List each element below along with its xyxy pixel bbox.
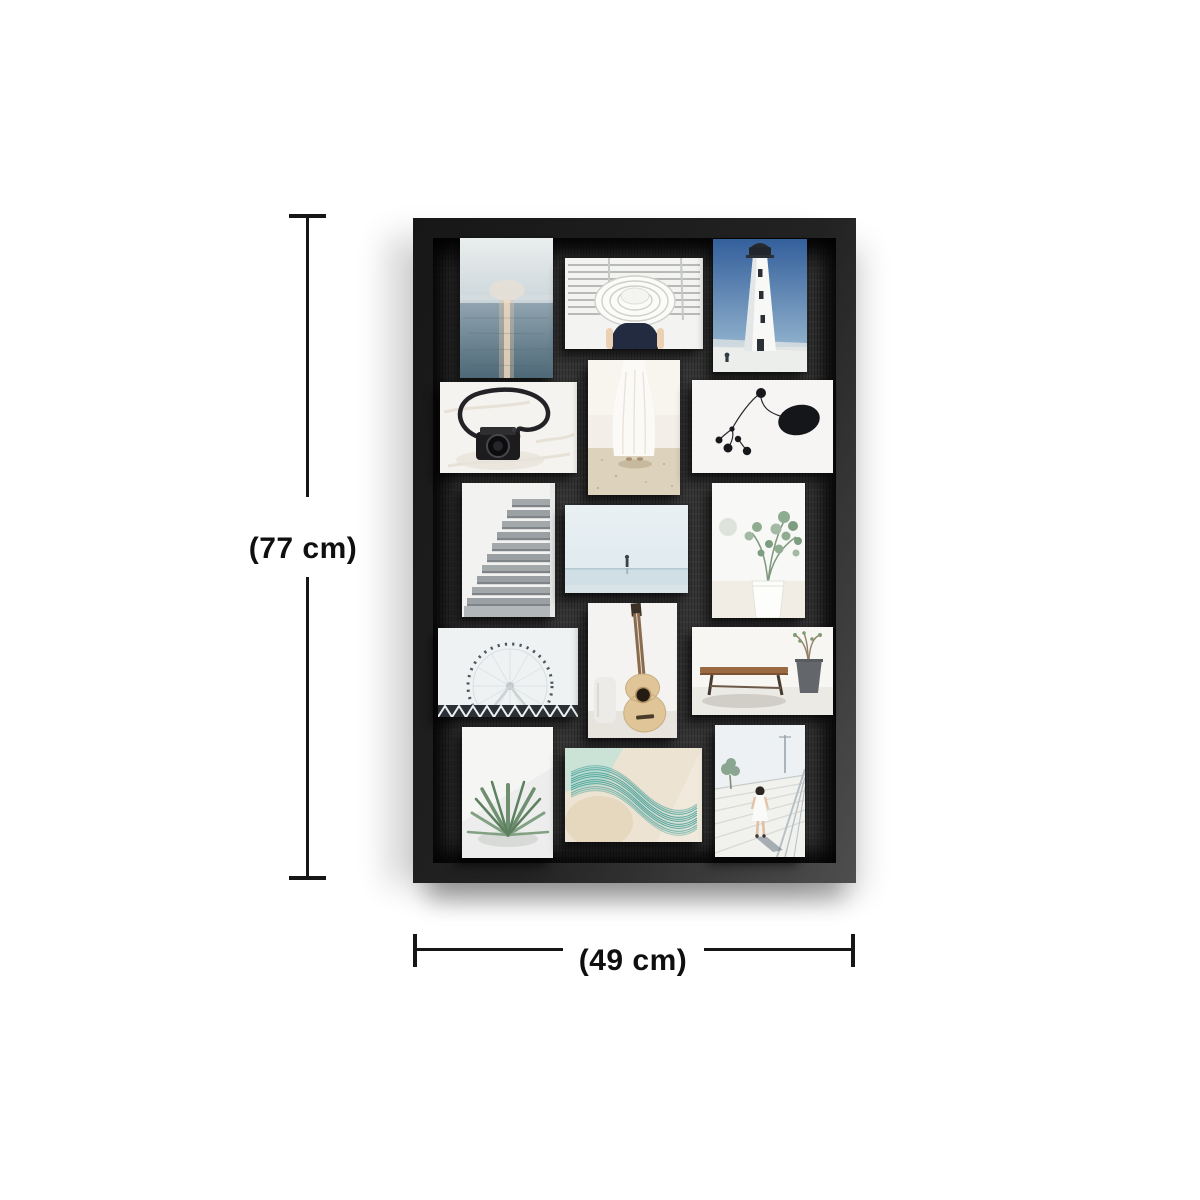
photo-illustration	[712, 483, 805, 618]
photo-illustration	[715, 725, 805, 857]
height-dim-line-bottom	[306, 577, 309, 878]
product-dimension-image: (77 cm) (49 cm)	[0, 0, 1200, 1200]
photo-illustration	[462, 727, 553, 858]
photo-illustration	[438, 628, 578, 717]
height-dimension-label: (77 cm)	[249, 532, 358, 566]
photo-illustration	[565, 505, 688, 593]
photo-sun-hat	[565, 258, 703, 349]
photo-ferris-wheel	[438, 628, 578, 717]
photo-illustration	[588, 603, 677, 738]
photo-white-dress	[588, 360, 680, 495]
photo-agave	[462, 727, 553, 858]
height-dim-cap-bottom	[289, 876, 326, 880]
photo-calm-beach	[565, 505, 688, 593]
photo-bench	[692, 627, 833, 715]
photo-illustration	[692, 380, 833, 473]
photo-illustration	[588, 360, 680, 495]
photo-illustration	[692, 627, 833, 715]
photo-wave-art	[565, 748, 702, 842]
photo-illustration	[565, 258, 703, 349]
photo-eucalyptus	[712, 483, 805, 618]
photo-stairs	[462, 483, 555, 617]
height-dim-line-top	[306, 215, 309, 497]
photo-guitar	[588, 603, 677, 738]
photo-lighthouse	[713, 239, 807, 372]
photo-ocean-sunset	[460, 238, 553, 378]
width-dim-cap-right	[851, 934, 855, 967]
width-dim-line-right	[704, 948, 855, 951]
width-dim-line-left	[413, 948, 563, 951]
photo-camera	[440, 382, 577, 473]
photo-boardwalk-child	[715, 725, 805, 857]
photo-illustration	[462, 483, 555, 617]
photo-mobile-art	[692, 380, 833, 473]
photo-illustration	[440, 382, 577, 473]
photo-illustration	[713, 239, 807, 372]
photo-illustration	[565, 748, 702, 842]
photo-illustration	[460, 238, 553, 378]
width-dimension-label: (49 cm)	[579, 944, 688, 978]
collage-frame	[413, 218, 856, 883]
